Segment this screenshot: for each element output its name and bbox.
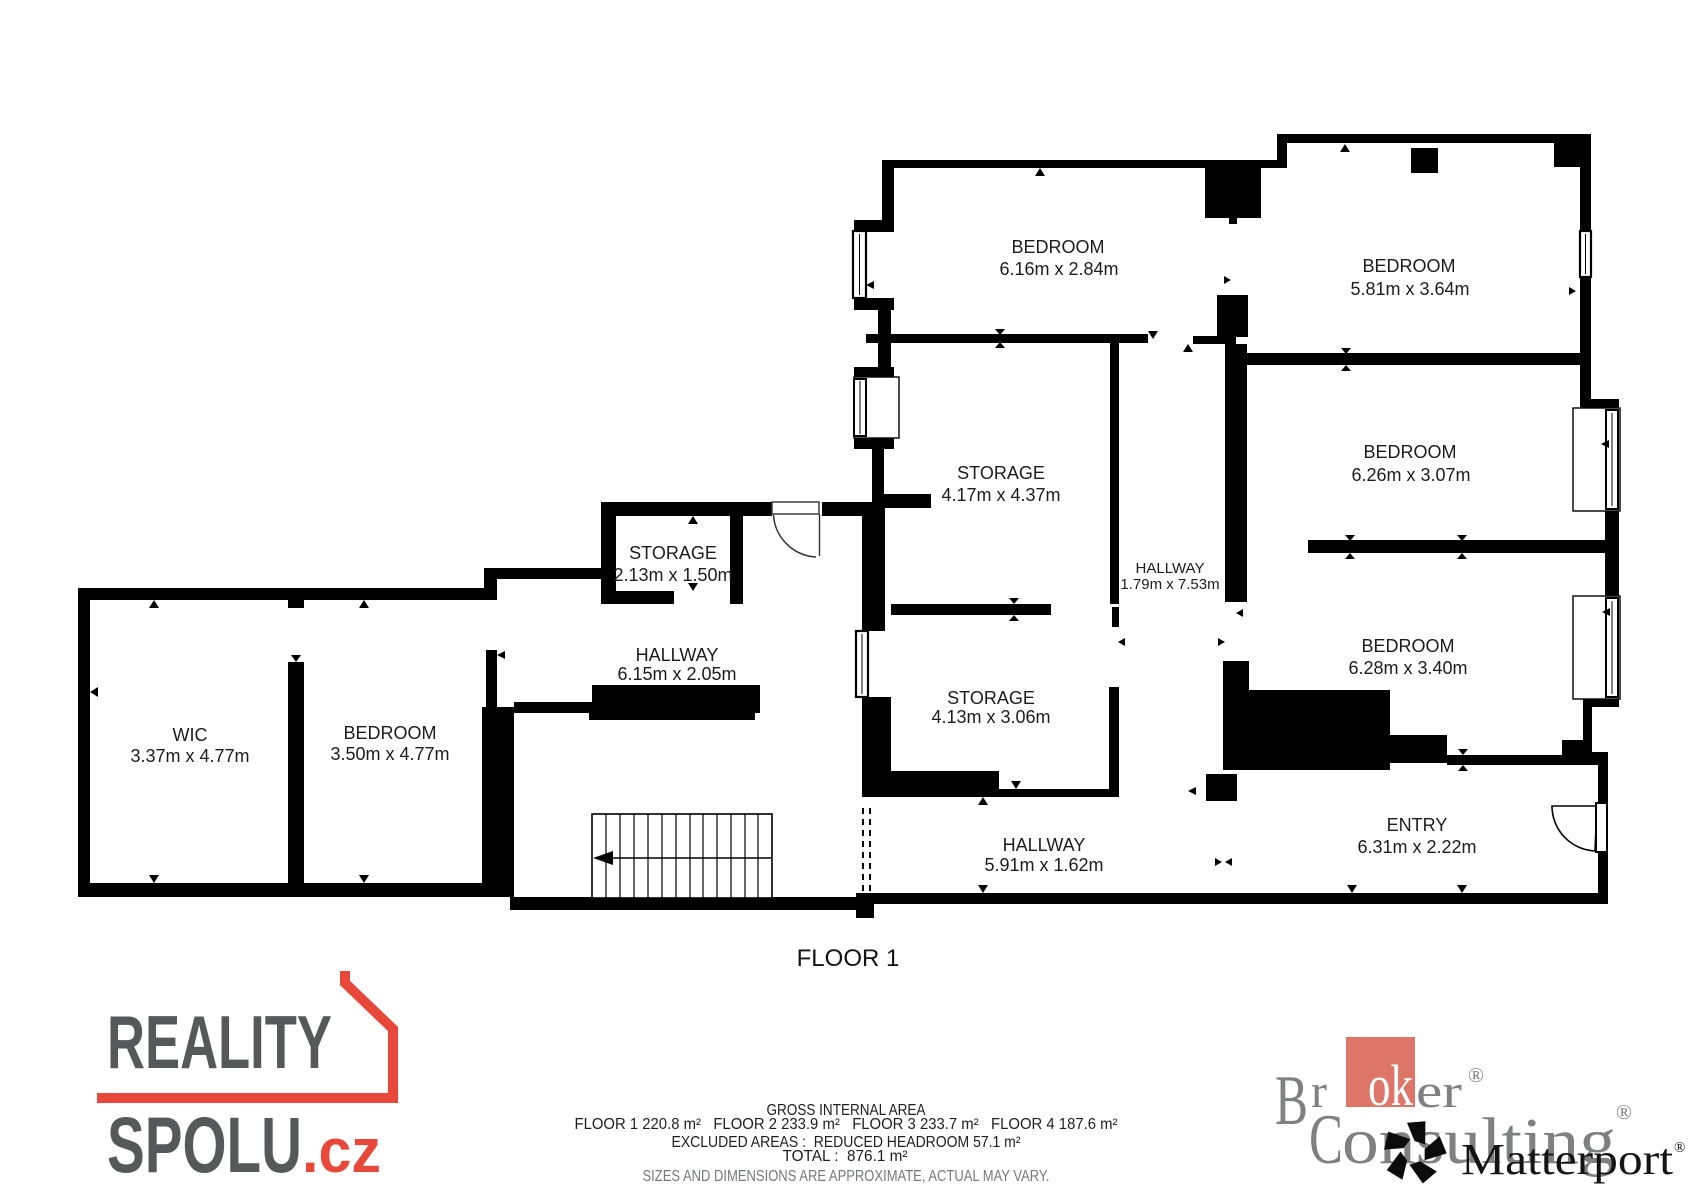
svg-text:5.81m x 3.64m: 5.81m x 3.64m bbox=[1350, 279, 1469, 299]
svg-text:BEDROOM: BEDROOM bbox=[1361, 636, 1454, 656]
svg-text:STORAGE: STORAGE bbox=[947, 688, 1035, 708]
svg-text:®: ® bbox=[1468, 1063, 1484, 1087]
svg-text:2.13m x 1.50m: 2.13m x 1.50m bbox=[613, 565, 732, 585]
svg-text:Matterport: Matterport bbox=[1461, 1135, 1673, 1184]
svg-text:C: C bbox=[1309, 1101, 1343, 1179]
svg-text:3.37m x 4.77m: 3.37m x 4.77m bbox=[130, 746, 249, 766]
svg-text:®: ® bbox=[1616, 1100, 1632, 1124]
svg-text:HALLWAY: HALLWAY bbox=[1003, 835, 1086, 855]
svg-text:SIZES AND DIMENSIONS ARE APPRO: SIZES AND DIMENSIONS ARE APPROXIMATE, AC… bbox=[643, 1168, 1050, 1185]
svg-text:SPOLU: SPOLU bbox=[107, 1100, 302, 1189]
svg-text:4.13m x 3.06m: 4.13m x 3.06m bbox=[931, 707, 1050, 727]
svg-text:FLOOR 1 220.8 m² FLOOR 2 233: FLOOR 1 220.8 m² FLOOR 2 233.9 m² FLOOR … bbox=[575, 1116, 1118, 1133]
svg-text:BEDROOM: BEDROOM bbox=[1363, 442, 1456, 462]
svg-text:REALITY: REALITY bbox=[107, 1000, 332, 1084]
svg-text:B: B bbox=[1275, 1062, 1308, 1140]
svg-text:6.31m x 2.22m: 6.31m x 2.22m bbox=[1357, 837, 1476, 857]
svg-text:ENTRY: ENTRY bbox=[1387, 815, 1448, 835]
svg-text:5.91m x 1.62m: 5.91m x 1.62m bbox=[984, 855, 1103, 875]
svg-text:®: ® bbox=[1674, 1140, 1685, 1156]
svg-text:6.16m x 2.84m: 6.16m x 2.84m bbox=[999, 259, 1118, 279]
svg-text:TOTAL : 876.1 m²: TOTAL : 876.1 m² bbox=[783, 1148, 908, 1165]
svg-text:WIC: WIC bbox=[173, 725, 208, 745]
svg-text:STORAGE: STORAGE bbox=[957, 463, 1045, 483]
svg-text:BEDROOM: BEDROOM bbox=[343, 723, 436, 743]
svg-text:6.28m x 3.40m: 6.28m x 3.40m bbox=[1348, 658, 1467, 678]
svg-text:4.17m x 4.37m: 4.17m x 4.37m bbox=[941, 485, 1060, 505]
svg-text:.cz: .cz bbox=[302, 1117, 381, 1186]
svg-text:HALLWAY: HALLWAY bbox=[1136, 560, 1205, 577]
svg-text:1.79m x 7.53m: 1.79m x 7.53m bbox=[1120, 576, 1219, 593]
svg-text:BEDROOM: BEDROOM bbox=[1362, 256, 1455, 276]
svg-text:3.50m x 4.77m: 3.50m x 4.77m bbox=[330, 744, 449, 764]
svg-text:6.26m x 3.07m: 6.26m x 3.07m bbox=[1351, 465, 1470, 485]
svg-text:6.15m x 2.05m: 6.15m x 2.05m bbox=[617, 664, 736, 684]
svg-text:FLOOR 1: FLOOR 1 bbox=[797, 945, 900, 972]
svg-text:STORAGE: STORAGE bbox=[629, 543, 717, 563]
svg-text:HALLWAY: HALLWAY bbox=[636, 645, 719, 665]
svg-text:BEDROOM: BEDROOM bbox=[1011, 237, 1104, 257]
